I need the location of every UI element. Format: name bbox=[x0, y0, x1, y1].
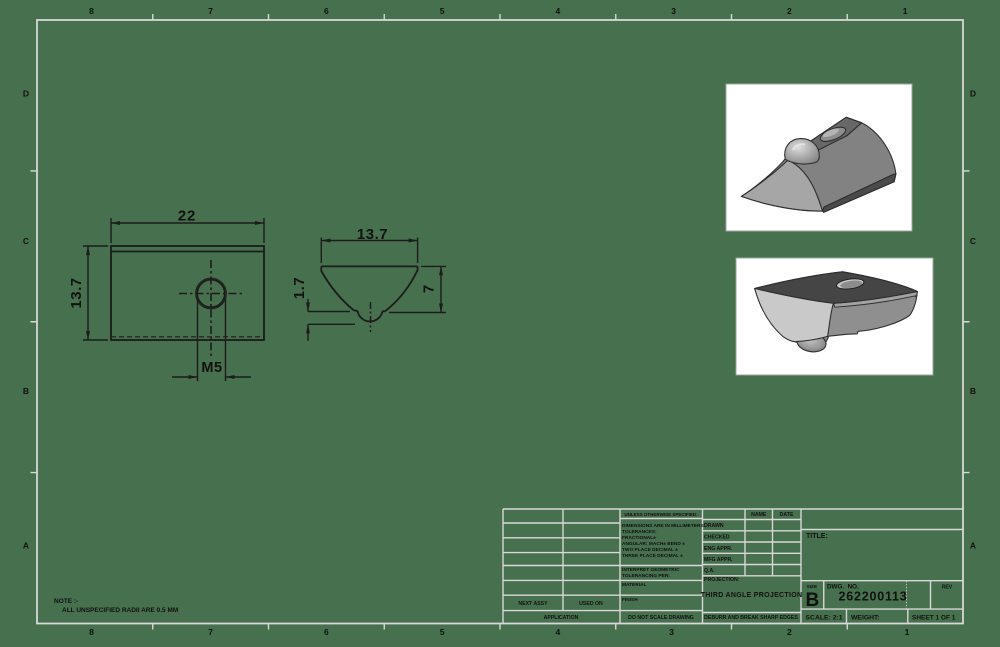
svg-text:4: 4 bbox=[556, 627, 561, 637]
svg-text:3: 3 bbox=[671, 6, 676, 16]
svg-text:2: 2 bbox=[787, 6, 792, 16]
svg-text:B: B bbox=[23, 386, 29, 396]
svg-text:FINISH: FINISH bbox=[622, 597, 638, 603]
svg-text:D: D bbox=[23, 89, 29, 99]
svg-text:4: 4 bbox=[556, 6, 561, 16]
svg-text:ANGULAR: MACH± BEND ±: ANGULAR: MACH± BEND ± bbox=[622, 541, 685, 547]
svg-text:MATERIAL: MATERIAL bbox=[622, 582, 646, 588]
svg-text:TOLERANCING PER:: TOLERANCING PER: bbox=[622, 573, 670, 579]
svg-text:NAME: NAME bbox=[751, 512, 767, 518]
svg-text:8: 8 bbox=[89, 6, 94, 16]
svg-text:MFG APPR.: MFG APPR. bbox=[704, 557, 733, 563]
svg-text:TOLERANCES:: TOLERANCES: bbox=[622, 529, 657, 535]
svg-text:APPLICATION: APPLICATION bbox=[544, 615, 579, 621]
svg-text:ALL UNSPECIFIED RADII ARE 0.5: ALL UNSPECIFIED RADII ARE 0.5 MM bbox=[62, 607, 178, 614]
svg-text:PROJECTION:: PROJECTION: bbox=[704, 577, 740, 583]
svg-text:B: B bbox=[970, 386, 976, 396]
svg-text:6: 6 bbox=[324, 6, 329, 16]
svg-text:TITLE:: TITLE: bbox=[806, 533, 828, 540]
svg-text:DO NOT SCALE DRAWING: DO NOT SCALE DRAWING bbox=[628, 615, 694, 621]
svg-text:7: 7 bbox=[208, 6, 213, 16]
svg-text:FRACTIONAL±: FRACTIONAL± bbox=[622, 535, 656, 541]
svg-text:DATE: DATE bbox=[780, 512, 794, 518]
svg-text:NOTE :-: NOTE :- bbox=[54, 598, 78, 605]
svg-text:3: 3 bbox=[669, 627, 674, 637]
svg-text:DIMENSIONS ARE IN MILLIMETERS: DIMENSIONS ARE IN MILLIMETERS bbox=[622, 523, 704, 529]
svg-text:USED ON: USED ON bbox=[579, 601, 603, 607]
svg-text:CHECKED: CHECKED bbox=[704, 535, 730, 541]
svg-text:C: C bbox=[23, 236, 29, 246]
svg-text:TWO PLACE DECIMAL ±: TWO PLACE DECIMAL ± bbox=[622, 547, 678, 553]
svg-text:B: B bbox=[806, 590, 820, 611]
svg-text:UNLESS OTHERWISE SPECIFIED:: UNLESS OTHERWISE SPECIFIED: bbox=[624, 512, 698, 517]
svg-text:A: A bbox=[23, 541, 29, 551]
svg-text:D: D bbox=[970, 89, 976, 99]
svg-text:SHEET 1 OF 1: SHEET 1 OF 1 bbox=[912, 615, 956, 622]
svg-text:M5: M5 bbox=[201, 360, 222, 376]
svg-text:SCALE: 2:1: SCALE: 2:1 bbox=[806, 615, 843, 622]
svg-text:6: 6 bbox=[324, 627, 329, 637]
svg-text:Q.A.: Q.A. bbox=[704, 568, 715, 574]
svg-text:1: 1 bbox=[905, 627, 910, 637]
svg-text:7: 7 bbox=[208, 627, 213, 637]
svg-text:THIRD ANGLE PROJECTION: THIRD ANGLE PROJECTION bbox=[701, 592, 803, 599]
svg-text:262200113: 262200113 bbox=[838, 590, 907, 604]
svg-text:DRAWN: DRAWN bbox=[704, 523, 724, 529]
svg-text:REV: REV bbox=[942, 585, 953, 591]
svg-text:A: A bbox=[970, 541, 976, 551]
svg-text:5: 5 bbox=[440, 6, 445, 16]
svg-text:2: 2 bbox=[787, 627, 792, 637]
svg-text:DEBURR AND BREAK SHARP EDGES: DEBURR AND BREAK SHARP EDGES bbox=[704, 615, 798, 621]
svg-text:WEIGHT:: WEIGHT: bbox=[851, 615, 880, 622]
svg-text:C: C bbox=[970, 236, 976, 246]
svg-text:1.7: 1.7 bbox=[291, 277, 308, 299]
svg-text:THREE PLACE DECIMAL ±: THREE PLACE DECIMAL ± bbox=[622, 553, 683, 559]
svg-text:ENG APPR.: ENG APPR. bbox=[704, 546, 733, 552]
svg-text:1: 1 bbox=[903, 6, 908, 16]
svg-text:5: 5 bbox=[440, 627, 445, 637]
svg-text:22: 22 bbox=[178, 208, 196, 225]
svg-text:INTERPRET GEOMETRIC: INTERPRET GEOMETRIC bbox=[622, 567, 680, 573]
svg-text:13.7: 13.7 bbox=[68, 277, 85, 308]
svg-text:7: 7 bbox=[421, 285, 438, 293]
svg-text:8: 8 bbox=[89, 627, 94, 637]
svg-text:13.7: 13.7 bbox=[357, 226, 388, 243]
svg-text:NEXT ASSY: NEXT ASSY bbox=[518, 601, 548, 607]
